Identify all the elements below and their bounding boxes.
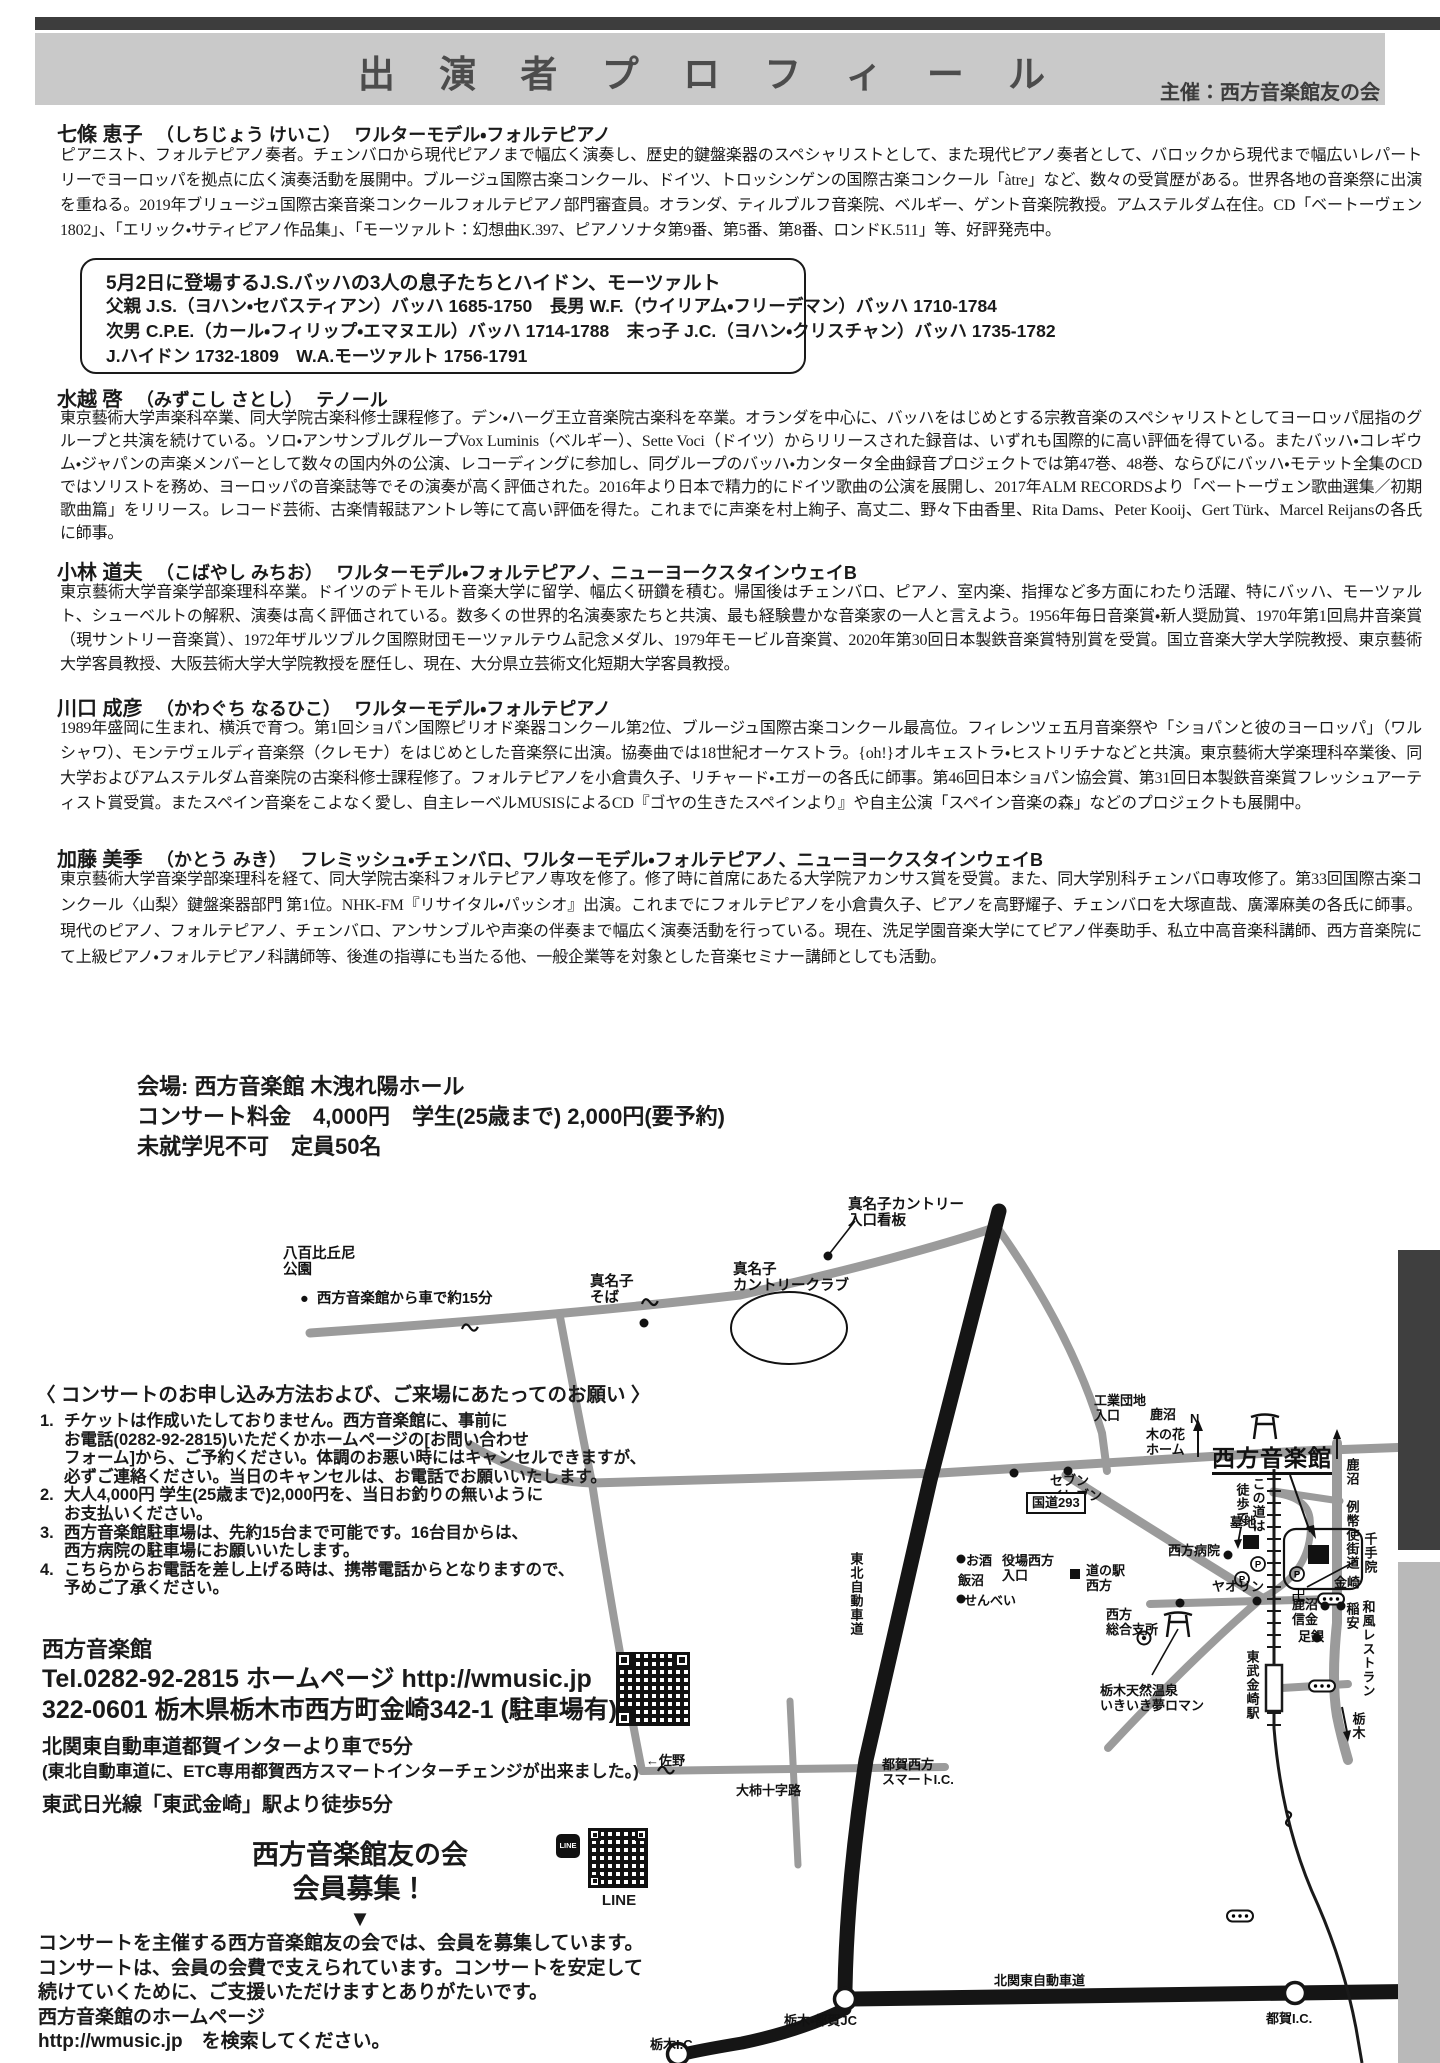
notice-item: 1.チケットは作成いたしておりません。西方音楽館に、事前に お電話(0282-9… bbox=[40, 1412, 680, 1486]
map-label-nishikata-hall: 西方音楽館 bbox=[1212, 1446, 1332, 1475]
map-label-tochigi-ic: 栃木I.C. bbox=[650, 2038, 696, 2053]
map-label-yakuba: 役場西方 入口 bbox=[1002, 1554, 1054, 1583]
map-label-senbei: せんべい bbox=[964, 1594, 1016, 1609]
map-label-ashigin: 足銀 bbox=[1298, 1630, 1324, 1645]
map-label-shinkin: 鹿沼 信金 bbox=[1292, 1598, 1318, 1627]
down-arrow-icon: ▼ bbox=[150, 1906, 570, 1932]
map-label-ogaki: 大柿十字路 bbox=[736, 1784, 801, 1799]
notice-item-number: 3. bbox=[40, 1524, 64, 1561]
map-label-15min: ● 西方音楽館から車で約15分 bbox=[300, 1291, 492, 1307]
flyer-page: 出 演 者 プ ロ フ ィ ー ル 主催：西方音楽館友の会 七條 恵子 （しちじ… bbox=[0, 0, 1440, 2063]
edge-light-block bbox=[1398, 1562, 1440, 2063]
map-label-osake: お酒 bbox=[966, 1554, 992, 1569]
contact-tel-web: Tel.0282-92-2815 ホームページ http://wmusic.jp bbox=[42, 1664, 639, 1695]
notice-title: 〈 コンサートのお申し込み方法および、ご来場にあたってのお願い 〉 bbox=[36, 1378, 650, 1407]
map-label-tobu-kanasaki-sta: 東武金崎駅 bbox=[1244, 1650, 1259, 1720]
map-label-kanuma-nw: 鹿沼 bbox=[1150, 1408, 1176, 1423]
map-label-manago-soba: 真名子 そば bbox=[590, 1274, 634, 1306]
map-label-reiheishi: 例幣使街道 bbox=[1344, 1500, 1359, 1570]
line-app-icon: LINE bbox=[556, 1834, 580, 1858]
map-label-michinoeki: 道の駅 西方 bbox=[1086, 1564, 1125, 1593]
map-label-onsen: 栃木天然温泉 いきいき夢ロマン bbox=[1100, 1684, 1204, 1713]
notice-list: 1.チケットは作成いたしておりません。西方音楽館に、事前に お電話(0282-9… bbox=[40, 1412, 680, 1598]
line-qr-label: LINE bbox=[586, 1892, 652, 1909]
map-label-country-club: 真名子 カントリークラブ bbox=[733, 1262, 849, 1294]
map-label-tsuga-jc: 栃木・都賀JC bbox=[784, 2014, 857, 2029]
map-label-kogyo: 工業団地 入口 bbox=[1094, 1394, 1146, 1423]
map-label-tochigi-down: 栃木 bbox=[1350, 1712, 1365, 1740]
map-label-hospital: 西方病院 bbox=[1168, 1544, 1220, 1559]
map-label-tohoku-expwy: 東北自動車道 bbox=[848, 1552, 863, 1636]
map-label-bochi: 墓地 bbox=[1230, 1516, 1256, 1531]
map-label-kanasaki: 金崎 bbox=[1334, 1576, 1360, 1591]
notice-item: 2.大人4,000円 学生(25歳まで)2,000円を、当日お釣りの無いように … bbox=[40, 1486, 680, 1523]
map-label-kanuma-up: 鹿沼 bbox=[1344, 1458, 1359, 1486]
map-label-manago-sign: 真名子カントリー 入口看板 bbox=[848, 1197, 964, 1229]
map-label-compass-n: N bbox=[1190, 1412, 1199, 1427]
access-by-car: 北関東自動車道都賀インターより車で5分 bbox=[42, 1734, 639, 1760]
notice-item-number: 4. bbox=[40, 1561, 64, 1598]
map-label-iinuma: 飯沼 bbox=[958, 1574, 984, 1589]
map-label-shisho: 西方 総合支所 bbox=[1106, 1608, 1158, 1637]
notice-item-text: 西方音楽館駐車場は、先約15台まで可能です。16台目からは、 西方病院の駐車場に… bbox=[64, 1524, 528, 1561]
notice-item-number: 2. bbox=[40, 1486, 64, 1523]
access-by-car-note: (東北自動車道に、ETC専用都賀西方スマートインターチェンジが出来ました。) bbox=[42, 1760, 639, 1784]
map-label-yaorin: ヤオリン bbox=[1212, 1580, 1264, 1595]
map-label-inayasu: 稲安 bbox=[1344, 1602, 1359, 1630]
map-label-kitakanto: 北関東自動車道 bbox=[994, 1974, 1085, 1989]
fanclub-title: 西方音楽館友の会 会員募集！ bbox=[150, 1838, 570, 1906]
fanclub-body: コンサートを主催する西方音楽館友の会では、会員を募集しています。 コンサートは、… bbox=[38, 1932, 644, 2055]
map-label-sano: ←佐野 bbox=[646, 1754, 685, 1769]
line-qr-code bbox=[588, 1828, 648, 1888]
notice-item-number: 1. bbox=[40, 1412, 64, 1486]
map-label-konohana: 木の花 ホーム bbox=[1146, 1428, 1185, 1457]
notice-item: 3.西方音楽館駐車場は、先約15台まで可能です。16台目からは、 西方病院の駐車… bbox=[40, 1524, 680, 1561]
notice-item: 4.こちらからお電話を差し上げる時は、携帯電話からとなりますので、 予めご了承く… bbox=[40, 1561, 680, 1598]
notice-item-text: 大人4,000円 学生(25歳まで)2,000円を、当日お釣りの無いように お支… bbox=[64, 1486, 543, 1523]
website-qr-code bbox=[616, 1652, 690, 1726]
notice-item-text: チケットは作成いたしておりません。西方音楽館に、事前に お電話(0282-92-… bbox=[64, 1412, 646, 1486]
map-label-restaurant: 和風レストラン bbox=[1360, 1600, 1375, 1698]
edge-dark-block bbox=[1398, 1250, 1440, 1550]
map-label-route293: 国道293 bbox=[1026, 1492, 1086, 1514]
notice-item-text: こちらからお電話を差し上げる時は、携帯電話からとなりますので、 予めご了承くださ… bbox=[64, 1561, 574, 1598]
contact-address: 322-0601 栃木県栃木市西方町金崎342-1 (駐車場有) bbox=[42, 1695, 639, 1726]
contact-name: 西方音楽館 bbox=[42, 1636, 639, 1664]
map-label-smart-ic: 都賀西方 スマートI.C. bbox=[882, 1758, 954, 1787]
map-label-park: 八百比丘尼 公園 bbox=[283, 1246, 356, 1278]
map-label-tsuga-ic: 都賀I.C. bbox=[1266, 2012, 1312, 2027]
map-label-senjuin: 千手院 bbox=[1362, 1532, 1377, 1574]
access-by-train: 東武日光線「東武金崎」駅より徒歩5分 bbox=[42, 1792, 639, 1818]
contact-block: 西方音楽館 Tel.0282-92-2815 ホームページ http://wmu… bbox=[42, 1636, 639, 1818]
